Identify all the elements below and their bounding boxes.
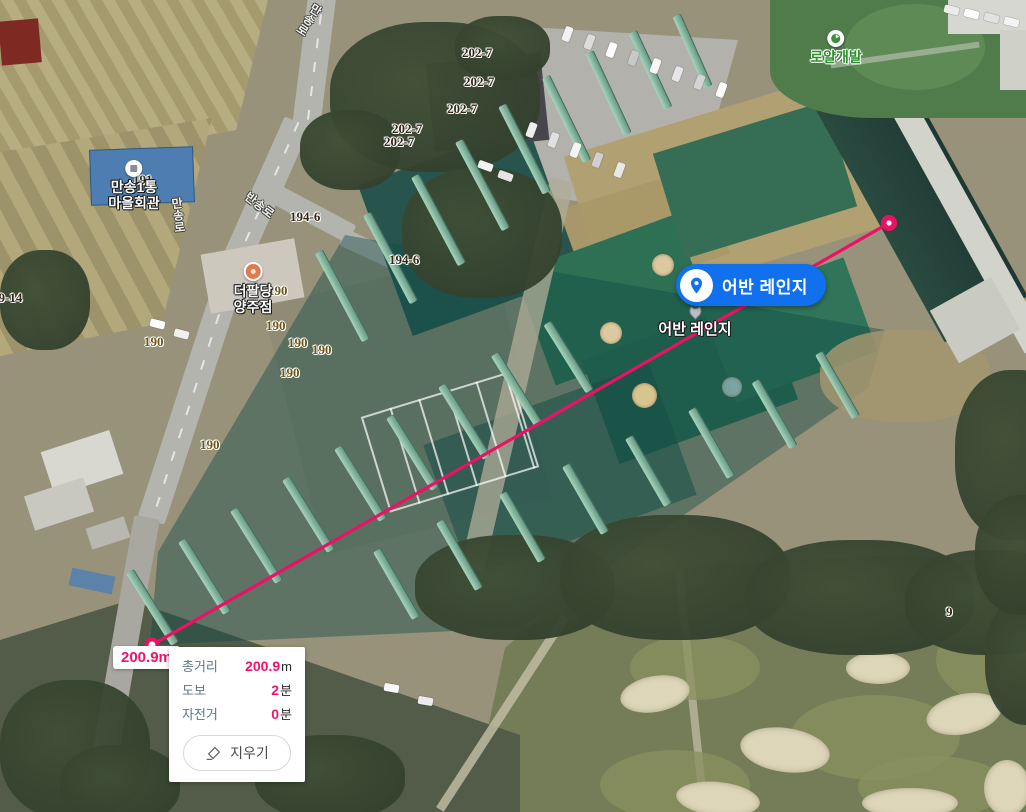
sand-bunker xyxy=(862,788,958,812)
eraser-icon xyxy=(205,744,223,762)
parcel-label: 194-6 xyxy=(389,252,419,268)
road-label: 만송로 xyxy=(168,196,189,234)
poi-label: 마을회관 xyxy=(108,195,160,211)
parcel-label: 194-6 xyxy=(290,209,320,225)
parcel-label: 190 xyxy=(312,342,332,358)
tree-cluster xyxy=(300,110,400,190)
sand-bunker xyxy=(984,760,1026,812)
total-distance-label: 총거리 xyxy=(182,656,218,675)
poi-label: 만송1통 xyxy=(111,179,157,195)
parcel-label: 190 xyxy=(144,334,164,350)
parcel-label: 190 xyxy=(200,437,220,453)
poi-village-hall[interactable]: 만송1통 마을회관 xyxy=(108,160,160,211)
parcel-label: 190 xyxy=(288,335,308,351)
pin-icon xyxy=(680,269,713,302)
clear-button-label: 지우기 xyxy=(230,743,269,763)
building xyxy=(1000,30,1026,90)
parcel-label: 79-14 xyxy=(0,290,22,306)
walk-value: 2 xyxy=(271,682,279,698)
restaurant-icon xyxy=(243,262,262,281)
poi-royal-dev[interactable]: 로얄개발 xyxy=(810,30,862,65)
bicycle-label: 자전거 xyxy=(182,704,218,723)
total-distance-unit: m xyxy=(281,659,292,674)
satellite-map[interactable]: 202-7202-7202-7202-7202-7194-6194-619119… xyxy=(0,0,1026,812)
range-target xyxy=(652,254,674,276)
poi-label: 더팔당 xyxy=(234,283,273,299)
poi-pill-label: 어반 레인지 xyxy=(722,273,808,298)
bicycle-value: 0 xyxy=(271,706,279,722)
range-target xyxy=(632,383,657,408)
red-roof-building xyxy=(0,18,42,65)
range-target xyxy=(600,322,622,344)
walk-label: 도보 xyxy=(182,680,206,699)
bicycle-time-row: 자전거 0분 xyxy=(169,704,305,728)
total-distance-value: 200.9 xyxy=(245,658,280,674)
golf-poi-icon xyxy=(686,306,704,322)
clear-button[interactable]: 지우기 xyxy=(183,735,291,771)
poi-label: 양주점 xyxy=(234,299,273,315)
poi-restaurant[interactable]: 더팔당 양주점 xyxy=(234,262,273,315)
royal-poi-icon xyxy=(828,30,845,47)
poi-pill-urban-range[interactable]: 어반 레인지 xyxy=(676,264,826,306)
walk-time-row: 도보 2분 xyxy=(169,680,305,704)
parcel-label: 202-7 xyxy=(462,45,492,61)
parcel-label: 9 xyxy=(946,604,953,620)
parcel-label: 202-7 xyxy=(464,74,494,90)
poi-urban-range-ground[interactable]: 어반 레인지 xyxy=(658,306,731,338)
village-hall-icon xyxy=(126,160,143,177)
range-target xyxy=(722,377,742,397)
parcel-label: 190 xyxy=(266,318,286,334)
poi-label: 어반 레인지 xyxy=(658,322,731,338)
parcel-label: 190 xyxy=(280,365,300,381)
walk-unit: 분 xyxy=(280,683,292,698)
measurement-panel: 총거리 200.9m 도보 2분 자전거 0분 지우기 xyxy=(169,647,305,782)
poi-label: 로얄개발 xyxy=(810,49,862,65)
bicycle-unit: 분 xyxy=(280,707,292,722)
total-distance-row: 총거리 200.9m xyxy=(169,656,305,680)
parcel-label: 202-7 xyxy=(384,134,414,150)
parcel-label: 202-7 xyxy=(447,101,477,117)
tree-cluster xyxy=(60,745,180,812)
sand-bunker xyxy=(846,652,910,684)
